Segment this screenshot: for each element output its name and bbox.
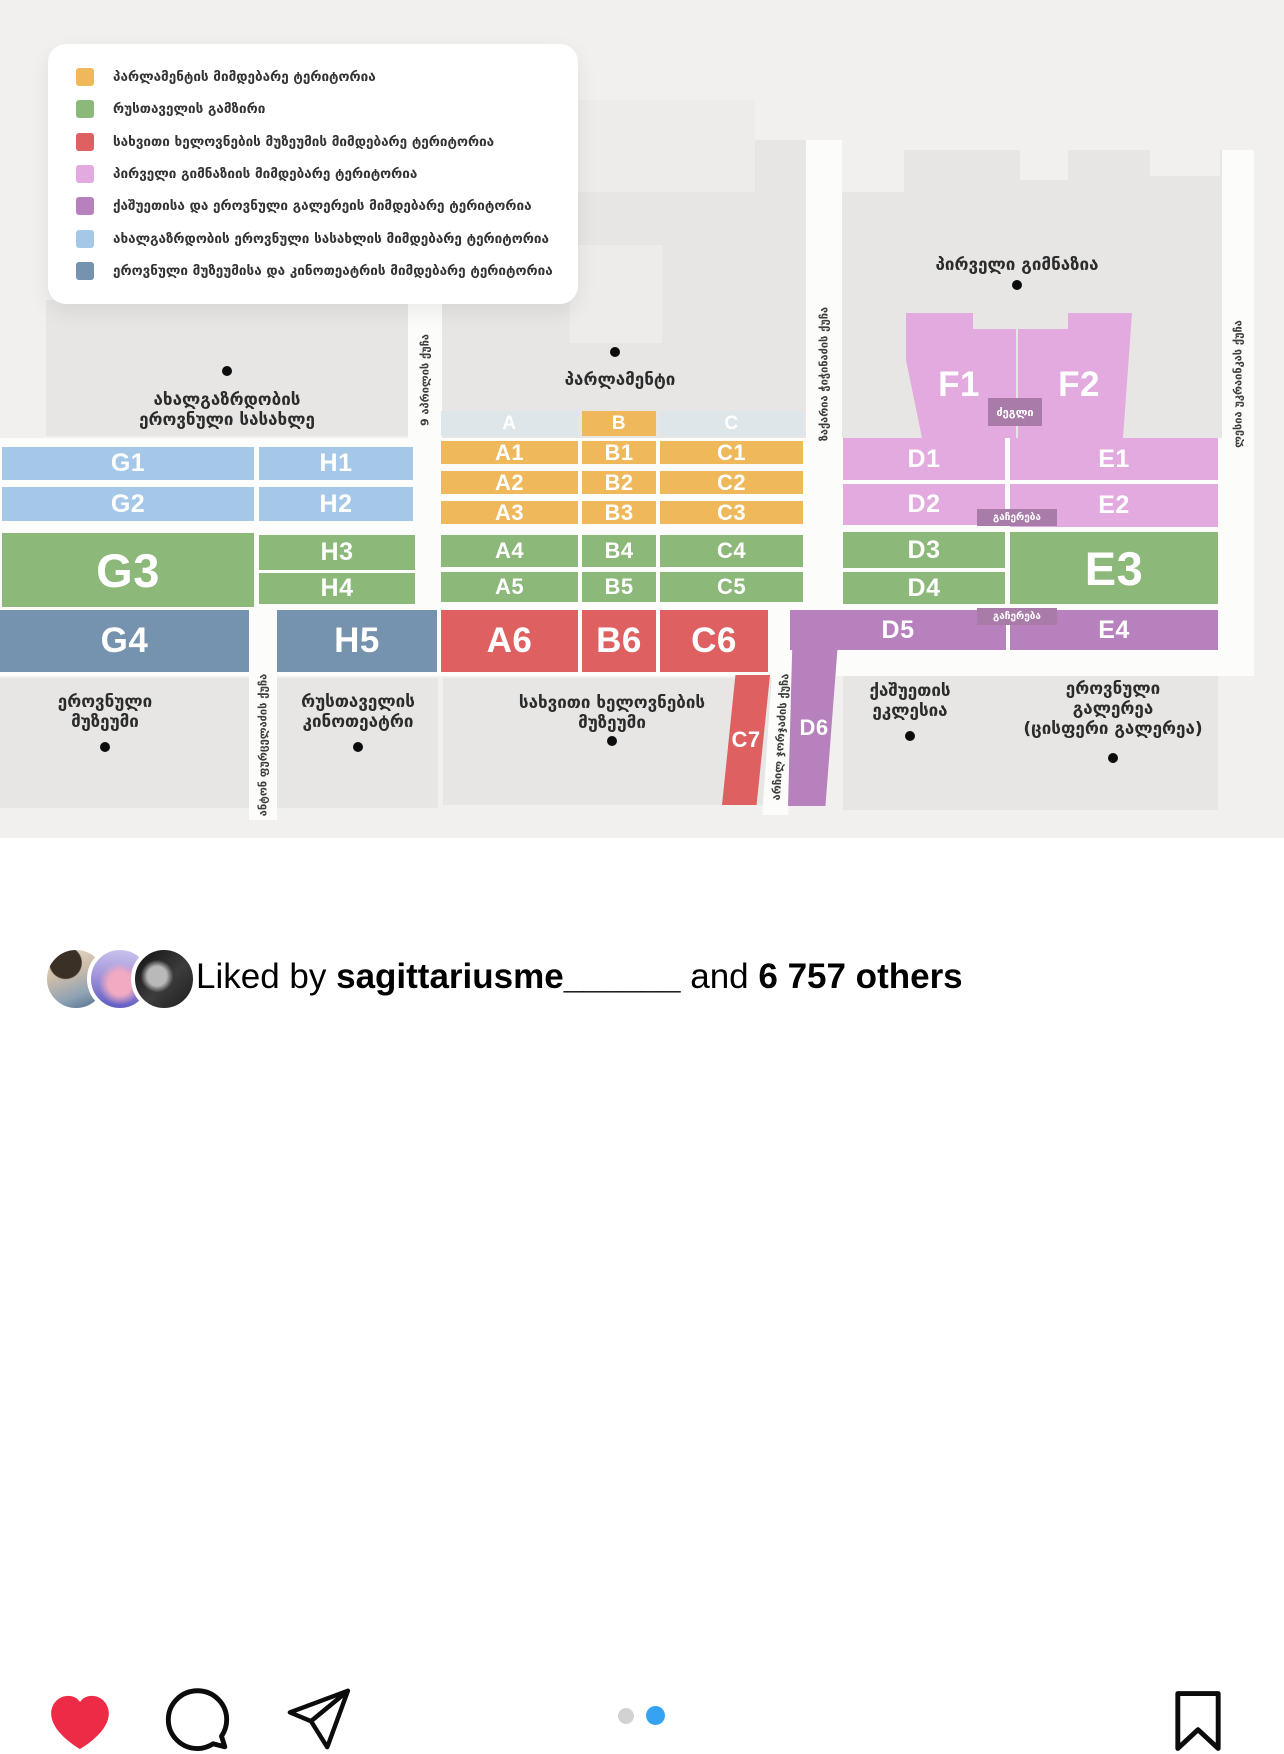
zone-c5: C5 xyxy=(660,572,803,602)
legend-swatch-orange xyxy=(76,68,94,86)
national-museum-dot xyxy=(100,742,110,752)
liked-by-text: Liked by sagittariusme______ and 6 757 o… xyxy=(196,957,963,997)
youth-palace-dot xyxy=(222,366,232,376)
zone-h5: H5 xyxy=(277,610,437,672)
building-patch xyxy=(570,245,662,343)
street-label: 9 აპრილის ქუჩა xyxy=(419,334,432,426)
bus-stop-marker: გაჩერება xyxy=(977,509,1057,526)
monument-marker: ძეგლი xyxy=(988,398,1042,426)
liker-avatar[interactable] xyxy=(131,946,197,1012)
zone-b2: B2 xyxy=(582,471,656,494)
legend-item: რუსთაველის გამზირი xyxy=(48,93,578,125)
parliament-label: პარლამენტი xyxy=(565,370,676,390)
like-heart-icon[interactable] xyxy=(44,1684,116,1752)
liked-by-prefix: Liked by xyxy=(196,957,326,996)
liker-username-link[interactable]: sagittariusme______ xyxy=(336,957,680,996)
legend-item: პარლამენტის მიმდებარე ტერიტორია xyxy=(48,61,578,93)
legend-label: რუსთაველის გამზირი xyxy=(113,101,265,117)
zone-a2: A2 xyxy=(441,471,578,494)
legend-label: ეროვნული მუზეუმისა და კინოთეატრის მიმდებ… xyxy=(113,263,553,279)
legend-swatch-pink xyxy=(76,165,94,183)
gymnasium-label: პირველი გიმნაზია xyxy=(935,255,1098,275)
carousel-pagination xyxy=(618,1706,665,1725)
cinema-label: რუსთაველისკინოთეატრი xyxy=(301,692,415,732)
legend-item: ქაშუეთისა და ეროვნული გალერეის მიმდებარე… xyxy=(48,190,578,222)
legend-label: სახვითი ხელოვნების მუზეუმის მიმდებარე ტე… xyxy=(113,134,494,150)
zone-d1: D1 xyxy=(843,438,1005,480)
fine-arts-label: სახვითი ხელოვნებისმუზეუმი xyxy=(519,693,705,733)
legend-item: პირველი გიმნაზიის მიმდებარე ტერიტორია xyxy=(48,158,578,190)
cinema-dot xyxy=(353,742,363,752)
parliament-dot xyxy=(610,347,620,357)
bookmark-save-icon[interactable] xyxy=(1169,1690,1227,1752)
zone-header-c: C xyxy=(660,411,803,436)
zone-c2: C2 xyxy=(660,471,803,494)
street-label: ზაქარია ჭიჭინაძის ქუჩა xyxy=(818,307,831,441)
zone-c1: C1 xyxy=(660,441,803,464)
building-notch xyxy=(1020,150,1068,180)
legend-swatch-red xyxy=(76,133,94,151)
protest-zones-map-image[interactable]: 9 აპრილის ქუჩა ზაქარია ჭიჭინაძის ქუჩა ლე… xyxy=(0,0,1284,838)
fine-arts-dot xyxy=(607,736,617,746)
youth-palace-label: ახალგაზრდობისეროვნული სასახლე xyxy=(139,390,315,430)
legend-item: სახვითი ხელოვნების მუზეუმის მიმდებარე ტე… xyxy=(48,126,578,158)
liked-by-row: Liked by sagittariusme______ and 6 757 o… xyxy=(0,944,1284,1010)
zone-g3: G3 xyxy=(2,533,254,607)
zone-g4: G4 xyxy=(0,610,249,672)
bus-stop-marker: გაჩერება xyxy=(977,608,1057,625)
post-action-bar xyxy=(0,838,1284,948)
zone-e3: E3 xyxy=(1010,532,1218,604)
share-send-icon[interactable] xyxy=(286,1687,352,1751)
zone-a3: A3 xyxy=(441,501,578,524)
kashueti-label: ქაშუეთისეკლესია xyxy=(869,681,950,721)
building-patch xyxy=(577,100,755,192)
gymnasium-dot xyxy=(1012,280,1022,290)
zone-a6: A6 xyxy=(441,610,578,672)
others-count-link[interactable]: 6 757 others xyxy=(758,957,962,996)
legend-swatch-lightblue xyxy=(76,230,94,248)
zone-e1: E1 xyxy=(1010,438,1218,480)
street-label: ანტონ ფურცელაძის ქუჩა xyxy=(257,674,270,816)
page-dot-active xyxy=(646,1706,665,1725)
legend-item: ახალგაზრდობის ეროვნული სასახლის მიმდებარ… xyxy=(48,222,578,254)
zone-c4: C4 xyxy=(660,535,803,567)
street-chichinadze: ზაქარია ჭიჭინაძის ქუჩა xyxy=(806,140,842,440)
zone-a5: A5 xyxy=(441,572,578,602)
street-ukrainka: ლესია უკრაინკას ქუჩა xyxy=(1222,150,1254,608)
building-notch xyxy=(1150,150,1220,176)
building-notch xyxy=(842,150,904,192)
comment-icon[interactable] xyxy=(163,1685,232,1754)
national-gallery-label: ეროვნულიგალერეა(ცისფერი გალერეა) xyxy=(1023,679,1202,739)
page-dot xyxy=(618,1708,634,1724)
zone-b6: B6 xyxy=(582,610,656,672)
legend-item: ეროვნული მუზეუმისა და კინოთეატრის მიმდებ… xyxy=(48,255,578,287)
zone-header-a: A xyxy=(441,411,578,436)
zone-header-b: B xyxy=(582,411,656,436)
zone-h3: H3 xyxy=(259,535,415,570)
national-museum-label: ეროვნულიმუზეუმი xyxy=(58,692,152,732)
zone-d3: D3 xyxy=(843,532,1005,568)
legend-label: პირველი გიმნაზიის მიმდებარე ტერიტორია xyxy=(113,166,417,182)
zone-h1: H1 xyxy=(259,447,413,480)
street-label: არჩილ ჯორჯაძის ქუჩა xyxy=(770,673,792,800)
zone-h4: H4 xyxy=(259,573,415,604)
zone-d6: D6 xyxy=(788,650,840,806)
legend-swatch-green xyxy=(76,100,94,118)
liked-by-connector: and xyxy=(690,957,748,996)
zone-b3: B3 xyxy=(582,501,656,524)
legend-label: ახალგაზრდობის ეროვნული სასახლის მიმდებარ… xyxy=(113,231,549,247)
zone-c3: C3 xyxy=(660,501,803,524)
legend-card: პარლამენტის მიმდებარე ტერიტორია რუსთაველ… xyxy=(48,44,578,304)
zone-g2: G2 xyxy=(2,487,254,521)
zone-b4: B4 xyxy=(582,535,656,567)
zone-d5: D5 xyxy=(790,610,1006,650)
zone-b1: B1 xyxy=(582,441,656,464)
zone-d4: D4 xyxy=(843,572,1005,604)
national-gallery-dot xyxy=(1108,753,1118,763)
legend-label: პარლამენტის მიმდებარე ტერიტორია xyxy=(113,69,376,85)
legend-swatch-steelblue xyxy=(76,262,94,280)
legend-label: ქაშუეთისა და ეროვნული გალერეის მიმდებარე… xyxy=(113,198,532,214)
zone-a4: A4 xyxy=(441,535,578,567)
street-purtseladze: ანტონ ფურცელაძის ქუჩა xyxy=(249,607,277,820)
kashueti-dot xyxy=(905,731,915,741)
zone-g1: G1 xyxy=(2,447,254,480)
zone-c6: C6 xyxy=(660,610,768,672)
zone-h2: H2 xyxy=(259,487,413,521)
zone-a1: A1 xyxy=(441,441,578,464)
legend-swatch-purple xyxy=(76,197,94,215)
street-label: ლესია უკრაინკას ქუჩა xyxy=(1232,320,1245,448)
zone-b5: B5 xyxy=(582,572,656,602)
